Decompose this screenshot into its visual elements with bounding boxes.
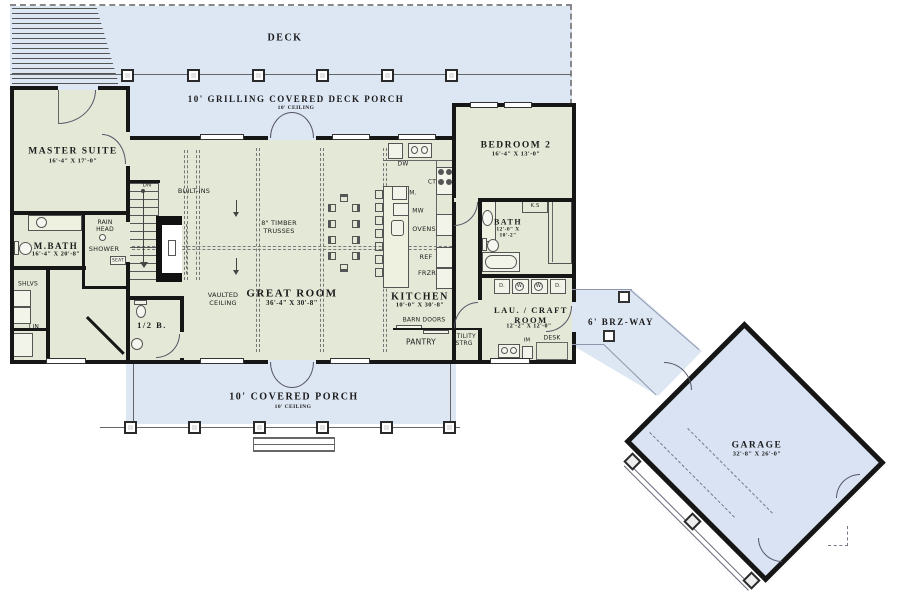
porch-post <box>188 421 201 434</box>
mbath-dims: 16'-4" X 20'-8" <box>32 250 81 257</box>
great-room-dims: 36'-4" X 30'-8" <box>266 299 318 307</box>
door-leaf <box>58 90 59 124</box>
rain-head-glyph <box>99 234 106 241</box>
truss-line <box>256 148 260 352</box>
washer-right-label: W. <box>536 283 542 289</box>
wall-bath2-bottom <box>478 274 576 278</box>
chair <box>340 264 348 272</box>
halfbath-sink <box>131 338 143 350</box>
window <box>470 102 498 108</box>
lin-label: LIN <box>29 323 39 330</box>
desk-outline <box>536 342 568 360</box>
wall-mbath-top <box>10 211 130 215</box>
chair <box>328 252 336 260</box>
porch-edge-right <box>450 362 451 422</box>
mbath-sink <box>36 217 47 228</box>
porch-edge-left <box>133 362 134 422</box>
toilet-bowl <box>487 239 499 252</box>
ref-label: REF <box>420 254 433 262</box>
window <box>200 134 244 140</box>
wall-bath2-west <box>478 198 482 364</box>
bath2-dims: 12'-0" X 10'-2" <box>496 227 519 240</box>
stool <box>375 268 383 277</box>
shelf-box <box>13 307 31 324</box>
master-suite-label: MASTER SUITE <box>28 147 118 158</box>
window <box>332 134 370 140</box>
frzr-label: FRZR <box>418 270 436 278</box>
chair <box>328 220 336 228</box>
desk-label: DESK <box>544 334 561 341</box>
im-label: IM <box>524 338 531 345</box>
bath2-label: BATH <box>494 217 522 226</box>
breezeway-label: 6' BRZ-WAY <box>588 317 654 327</box>
wall-closet-divider <box>46 266 50 364</box>
window <box>398 134 436 140</box>
ct-label: CT <box>428 178 436 185</box>
firebox <box>168 240 176 256</box>
ks-label: K.S <box>531 203 540 209</box>
dryer-left-label: D. <box>499 283 505 289</box>
burner <box>438 179 444 185</box>
built-ins-line <box>196 150 200 280</box>
garage-dashed-corner <box>828 526 848 546</box>
ovens-label: OVENS <box>412 226 436 234</box>
deck-post <box>187 69 200 82</box>
deck-label: DECK <box>268 32 303 44</box>
wall-shower-west <box>82 211 85 289</box>
chair <box>352 204 360 212</box>
sink-bowl <box>411 146 418 154</box>
bath2-sink <box>482 210 493 226</box>
toilet-bowl <box>136 305 146 318</box>
porch-post <box>253 421 266 434</box>
deck-post <box>381 69 394 82</box>
wall-left <box>10 86 14 364</box>
washer-left-label: W. <box>517 283 523 289</box>
window <box>330 358 370 364</box>
mixer-cabinet <box>392 186 407 200</box>
linen-shelves <box>13 333 33 357</box>
sink-bowl <box>421 146 428 154</box>
door-gap-lau <box>478 300 482 328</box>
timber-trusses-label: 8" TIMBER TRUSSES <box>261 220 297 236</box>
barn-doors-label: BARN DOORS <box>403 316 446 323</box>
pantry-label: PANTRY <box>406 338 436 347</box>
stair-arrow-dot <box>141 189 145 193</box>
grilling-porch-ceiling: 10' CEILING <box>278 105 315 111</box>
deck-post <box>316 69 329 82</box>
shelf-box <box>13 290 31 307</box>
toilet-bowl <box>19 242 32 255</box>
dn-label: DN <box>143 183 152 190</box>
floor-plan: DECK 10' GRILLING COVERED DECK PORCH 10'… <box>0 0 900 599</box>
rain-head-label: RAIN HEAD <box>96 219 114 233</box>
lau-craft-dims: 12'-2" X 12'-0" <box>506 324 551 331</box>
chair <box>352 252 360 260</box>
wall-halfbath-top <box>126 296 184 300</box>
chair <box>352 220 360 228</box>
deck-post <box>252 69 265 82</box>
dryer-right-label: D. <box>555 283 561 289</box>
stool <box>375 229 383 238</box>
wall-shower-south <box>82 286 128 289</box>
ovens <box>436 214 453 236</box>
island-sink <box>391 220 404 236</box>
deck-post <box>121 69 134 82</box>
stair-arrow-head <box>140 262 148 268</box>
hall-opening <box>126 222 130 262</box>
closet-rod <box>552 202 553 262</box>
chair <box>328 236 336 244</box>
breezeway-edge <box>572 344 604 345</box>
door-gap-breezeway <box>572 302 576 332</box>
breezeway-post <box>603 330 615 342</box>
porch-post <box>124 421 137 434</box>
deck-dashed-edge-top <box>10 4 572 6</box>
door-arc-garage-entry <box>664 362 692 390</box>
seat-label: SEAT <box>112 258 124 263</box>
microwave <box>393 203 409 216</box>
porch-post <box>443 421 456 434</box>
island <box>383 186 409 288</box>
window <box>200 358 244 364</box>
window <box>504 102 532 108</box>
porch-steps <box>253 437 335 452</box>
shlvs-label: SHLVS <box>18 280 38 287</box>
deck-post <box>445 69 458 82</box>
covered-porch-ceiling: 10' CEILING <box>275 404 312 410</box>
chair <box>340 194 348 202</box>
stool <box>375 203 383 212</box>
counter-edge <box>383 160 453 161</box>
mw-label: MW <box>412 207 424 214</box>
sink-bowl <box>510 347 517 354</box>
dishwasher <box>388 143 403 159</box>
vault-arrow-head <box>233 212 239 217</box>
bedroom2-dims: 16'-4" X 13'-0" <box>492 150 541 157</box>
stool <box>375 216 383 225</box>
window <box>46 358 86 364</box>
stool <box>375 242 383 251</box>
kitchen-dims: 10'-0" X 30'-8" <box>396 301 445 308</box>
covered-porch-label: 10' COVERED PORCH <box>229 391 358 403</box>
built-ins-label: BUILT-INS <box>178 188 210 196</box>
utility-strg-label: UTILITY STRG <box>452 333 476 347</box>
wall-pantry-top <box>393 328 480 330</box>
barn-door-panel <box>423 330 449 334</box>
stool <box>375 255 383 264</box>
door-gap-master-entry <box>126 132 130 166</box>
grilling-porch-label: 10' GRILLING COVERED DECK PORCH <box>188 94 405 104</box>
vaulted-ceiling-label: VAULTED CEILING <box>208 292 238 308</box>
dw-label: DW <box>398 160 409 167</box>
master-suite-dims: 16'-4" X 17'-0" <box>49 157 98 164</box>
truss-line <box>320 148 324 352</box>
hearth-dashes <box>186 224 187 274</box>
window <box>490 358 530 364</box>
porch-post <box>380 421 393 434</box>
half-bath-label: 1/2 B. <box>137 321 167 331</box>
breezeway-edge <box>572 289 632 290</box>
stair-arrow-line <box>143 192 144 264</box>
stool <box>375 190 383 199</box>
deck-dashed-edge-right <box>570 4 572 105</box>
mixer-label: M. <box>409 189 416 196</box>
breezeway-post <box>618 291 630 303</box>
chair <box>328 204 336 212</box>
porch-beam <box>100 427 460 428</box>
burner <box>438 169 444 175</box>
chair <box>352 236 360 244</box>
garage-dims: 32'-8" X 26'-0" <box>733 450 782 457</box>
porch-post <box>316 421 329 434</box>
shower-label: SHOWER <box>89 246 119 254</box>
deck-beam <box>10 74 571 75</box>
tub-inner <box>485 255 517 269</box>
vault-arrow-head <box>233 270 239 275</box>
sink-bowl <box>501 347 508 354</box>
door-gap-halfbath <box>180 332 184 358</box>
